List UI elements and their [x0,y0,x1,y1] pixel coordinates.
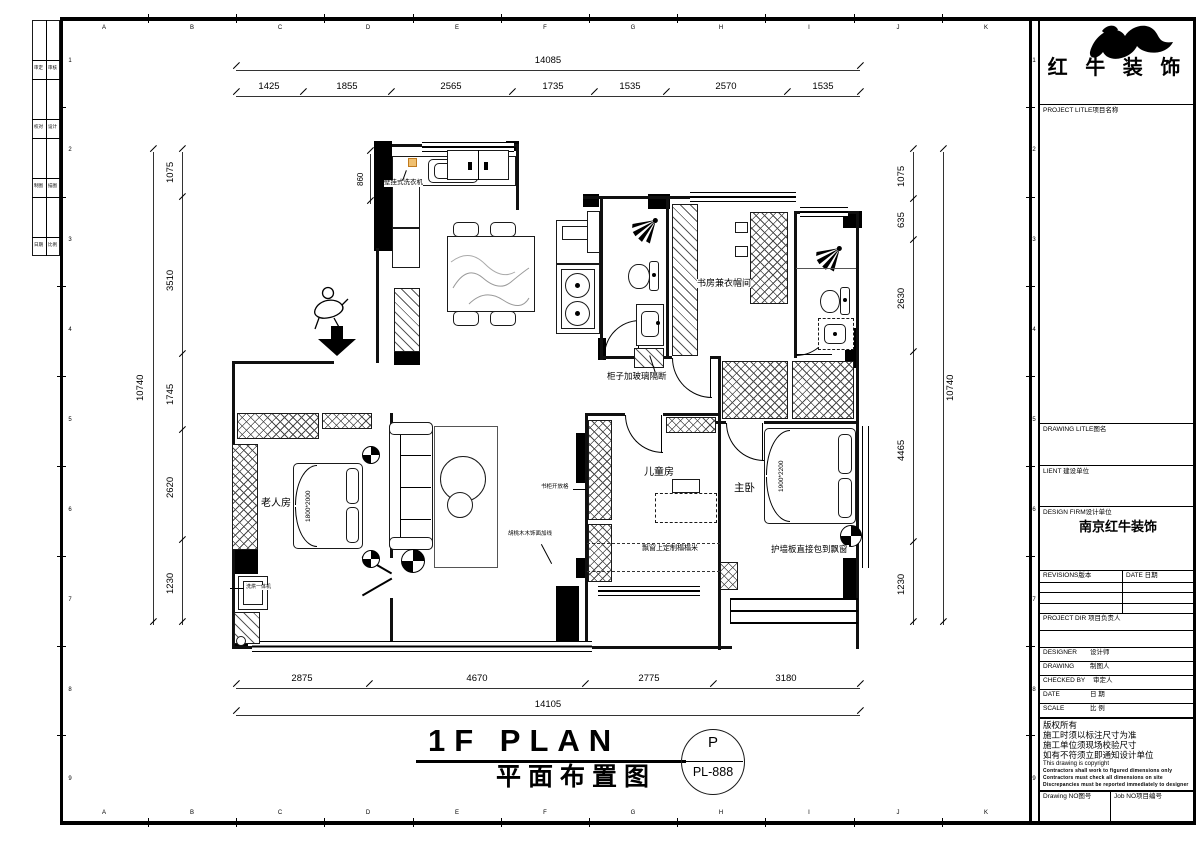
dimension-line [236,688,860,689]
dim-top-seg: 1535 [803,82,843,92]
door-leaf [661,415,662,453]
dim-right-seg: 1230 [897,562,909,606]
bed-size-elder: 1800*2000 [306,480,316,532]
grid-letter: A [98,25,110,31]
grid-letter: E [451,25,463,31]
dim-top-seg: 2565 [431,82,471,92]
room-elder: 老人房 [261,499,291,510]
burner [565,301,590,326]
strip-cell: 日期 [34,243,43,248]
grid-letter: B [186,810,198,816]
pillow [346,468,359,504]
stamp-number: PL-888 [681,766,745,779]
kitchen-cabinet [392,228,420,268]
dimension-line [236,70,860,71]
wall [556,586,579,648]
nightstand-icon [362,550,380,568]
side-table [447,492,473,518]
shoe-cabinet [394,288,420,352]
tb-drawing-by-zh: 制图人 [1090,664,1110,671]
grid-number: 9 [64,776,76,782]
strip-cell: 审核 [48,66,57,71]
grid-number: 4 [1028,327,1040,333]
dim-left-seg: 1230 [166,561,178,605]
kitchen-cabinet [392,186,420,228]
floor-lamp-icon [401,549,425,573]
tb-copyright-en: This drawing is copyright [1043,761,1109,767]
cabinet [720,562,738,590]
dim-left-seg: 1745 [166,372,178,416]
bay-window [730,622,858,624]
note-washer-dryer: 洗烘一体机 [246,585,271,590]
note-wall-washer: 壁挂式洗衣机 [384,180,423,187]
tb-date: DATE [1043,692,1060,699]
wardrobe [588,524,612,582]
window [252,641,592,652]
dim-right-seg: 1075 [897,154,909,198]
window [690,192,796,202]
grid-letter: K [980,810,992,816]
dim-top-seg: 1425 [249,82,289,92]
tb-drawing-title: DRAWING LITLE图名 [1043,427,1106,434]
grid-letter: F [539,25,551,31]
person-figure-icon [305,284,351,334]
door-leaf [762,423,763,461]
drawing-sheet: A B C D E F G H I J K A B C D E F G H I … [0,0,1200,844]
bed-size-master: 1900*2200 [779,446,789,506]
door-swing [362,578,392,596]
grid-number: 8 [64,687,76,693]
strip-cell: 设计 [48,125,57,130]
dim-bottom-seg: 4670 [457,674,497,684]
dim-left-seg: 3510 [166,258,178,302]
strip-cell: 制图 [34,184,43,189]
wall [666,198,669,358]
wall [232,361,334,364]
door-leaf [796,354,832,355]
note-wall-panel: 护墙板直接包到飘窗 [770,545,849,554]
tb-revisions: REVISIONS版本 [1043,573,1091,580]
tb-copyright-zh: 版权所有 [1043,721,1077,730]
dining-chair [453,311,479,326]
nightstand-icon [362,446,380,464]
dimension-line [236,715,860,716]
grid-number: 8 [1028,687,1040,693]
wall [856,211,859,649]
grid-number: 6 [64,507,76,513]
grid-letter: D [362,810,374,816]
frame-top [60,17,1196,21]
grid-letter: J [892,810,904,816]
dim-top-total: 14085 [518,56,578,66]
grid-letter: C [274,810,286,816]
room-child: 儿童房 [644,468,674,479]
dim-bottom-seg: 2775 [629,674,669,684]
study-stool [735,246,748,257]
sofa [389,422,433,550]
strip-cell: 描图 [48,184,57,189]
grid-number: 7 [64,597,76,603]
tb-design-firm: DESIGN FIRM设计单位 [1043,510,1112,517]
rednote-bull-logo-icon [1080,22,1180,62]
frame-bottom [60,821,1196,825]
bay-window [730,610,858,612]
shower-icon [629,215,659,245]
pillow [838,478,852,518]
tb-design-firm-value: 南京红牛装饰 [1048,520,1188,534]
grid-letter: D [362,25,374,31]
dim-left-seg: 1075 [166,150,178,194]
wall [718,356,721,650]
grid-number: 1 [64,58,76,64]
dim-right-seg: 2630 [897,276,909,320]
grid-number: 2 [1028,147,1040,153]
dimension-line [236,96,860,97]
dim-top-seg: 1855 [327,82,367,92]
grid-letter: I [803,25,815,31]
wardrobe [322,413,372,429]
dim-top-seg: 2570 [706,82,746,92]
dim-washer: 860 [357,160,368,198]
tb-revision-date: DATE 日期 [1126,573,1158,580]
dim-bottom-total: 14105 [518,700,578,710]
dining-chair [490,222,516,237]
grid-letter: G [627,25,639,31]
entry-arrow-icon [318,339,356,356]
grid-letter: E [451,810,463,816]
toilet [628,264,650,289]
frame-right [1193,17,1196,824]
wardrobe [792,361,854,419]
pillow [346,507,359,543]
tb-checked-by: CHECKED BY [1043,678,1085,685]
grid-letter: K [980,25,992,31]
plan-title-en: 1F PLAN [428,725,620,758]
wall [663,413,720,416]
dimension-line [182,152,183,625]
strip-cell: 比例 [48,243,57,248]
grid-number: 3 [1028,237,1040,243]
tb-client: LIENT 建设单位 [1043,469,1089,476]
grid-letter: A [98,810,110,816]
tb-copyright-zh: 施工单位须现场校验尺寸 [1043,741,1137,750]
dim-right-seg: 4465 [897,428,909,472]
tb-project-dir: PROJECT DIR 项目负责人 [1043,616,1121,623]
tb-drawing-by: DRAWING [1043,664,1074,671]
door-arc [672,358,712,398]
desk [655,493,717,523]
wardrobe [237,413,319,439]
tb-job-no: Job NO项目编号 [1114,794,1162,801]
tb-copyright-small: Contractors shall work to figured dimens… [1043,769,1172,774]
dining-chair [453,222,479,237]
entry-arrow-icon [331,326,343,339]
grid-number: 3 [64,237,76,243]
dimension-line [943,152,944,625]
tatami-edge [587,571,720,572]
tb-copyright-small: Contractors must check all dimensions on… [1043,776,1163,781]
grid-letter: B [186,25,198,31]
company-name: 红 牛 装 饰 [1042,58,1192,79]
frame-left [60,17,63,824]
tb-copyright-small: Discrepancies must be reported immediate… [1043,783,1189,788]
tb-project-title: PROJECT LITLE项目名称 [1043,108,1118,115]
wall [583,196,670,199]
grid-letter: F [539,810,551,816]
dim-right-total: 10740 [946,358,958,418]
plan-title-zh: 平面布置图 [496,764,656,790]
bath-cabinet [587,211,600,253]
dining-chair [490,311,516,326]
grid-letter: H [715,810,727,816]
door-arc [625,415,663,453]
wall [592,646,732,649]
tatami-edge [587,543,720,544]
dim-right-seg: 635 [897,200,909,240]
wall [516,144,519,210]
grid-letter: I [803,810,815,816]
bay-window [730,598,858,600]
grid-letter: H [715,25,727,31]
wall [376,248,379,363]
study-stool [735,222,748,233]
dim-top-seg: 1735 [533,82,573,92]
grid-number: 5 [1028,417,1040,423]
room-study: 书房兼衣帽间 [697,279,751,288]
tb-scale: SCALE [1043,706,1064,713]
dim-top-seg: 1535 [610,82,650,92]
note-glass-cabinet: 柜子加玻璃隔断 [606,372,668,381]
dim-bottom-seg: 3180 [766,674,806,684]
cabinet [666,417,716,433]
grid-number: 1 [1028,58,1040,64]
study-cabinet [750,212,788,304]
tb-designer-zh: 设计师 [1090,650,1110,657]
wall [585,413,625,416]
burner [565,273,590,298]
strip-cell: 校对 [34,125,43,130]
dim-bottom-seg: 2875 [282,674,322,684]
tb-date-zh: 日 期 [1090,692,1105,699]
wall [764,421,858,424]
wall [394,350,420,365]
study-wardrobe [672,204,698,356]
toilet [820,290,840,313]
bay-window [862,426,863,568]
window [598,586,700,596]
grid-letter: J [892,25,904,31]
wall [374,141,392,251]
tb-designer: DESIGNER [1043,650,1077,657]
dim-left-seg: 2620 [166,465,178,509]
wardrobe [232,444,258,550]
tb-drawing-no: Drawing NO图号 [1043,794,1091,801]
note-tatami: 飘窗上定制榻榻米 [641,545,699,552]
room-master: 主卧 [734,483,755,494]
grid-number: 7 [1028,597,1040,603]
door-leaf [710,358,711,398]
dimension-line [153,152,154,625]
power-box-marker [408,158,417,167]
tb-copyright-zh: 施工时须以标注尺寸为准 [1043,731,1137,740]
dining-table-marble [449,238,533,310]
wall [232,550,258,574]
desk-monitor [672,479,700,493]
drain [236,636,246,646]
hall-cabinet [634,348,664,368]
grid-number: 2 [64,147,76,153]
stamp-letter: P [681,735,745,751]
grid-number: 9 [1028,776,1040,782]
tb-checked-by-zh: 审定人 [1093,678,1113,685]
wardrobe [588,420,612,520]
door-arc [726,423,764,461]
window [800,207,848,217]
dimension-line [370,154,371,204]
grid-number: 6 [1028,507,1040,513]
note-bookshelf: 书柜开放格 [541,485,569,491]
dim-left-total: 10740 [136,358,148,418]
wardrobe [722,361,788,419]
grid-number: 4 [64,327,76,333]
grid-number: 5 [64,417,76,423]
sofa-armrest [389,422,433,435]
tb-copyright-zh: 如有不符须立即通知设计单位 [1043,751,1154,760]
pillow [838,434,852,474]
wall [600,198,603,360]
bay-window [868,426,869,568]
grid-letter: G [627,810,639,816]
strip-cell: 审定 [34,66,43,71]
tb-scale-zh: 比 例 [1090,706,1105,713]
note-walnut: 胡桃木木饰面加线 [508,532,552,538]
dimension-line [913,152,914,625]
grid-letter: C [274,25,286,31]
